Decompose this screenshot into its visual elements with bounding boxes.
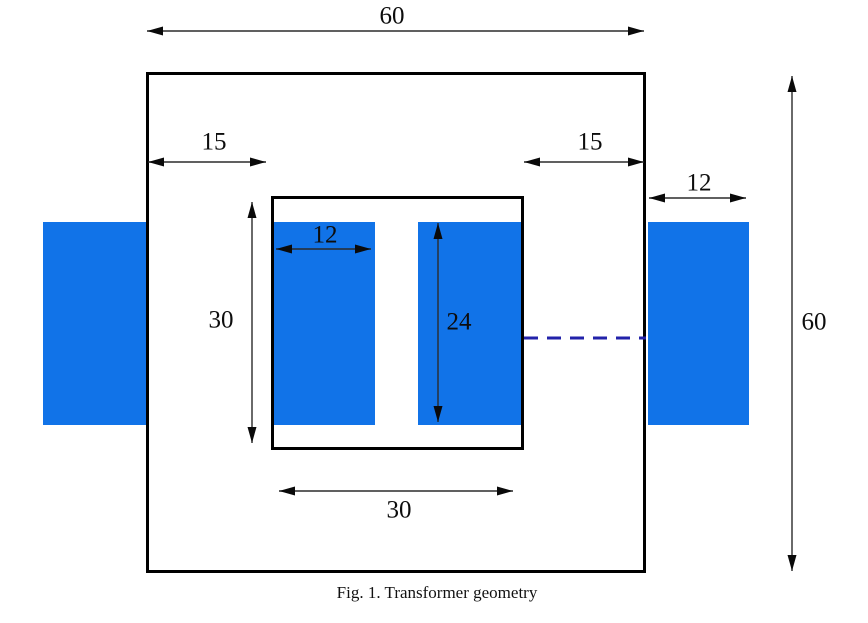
- dim-label-coil-height: 24: [447, 310, 472, 335]
- dim-label-core-width: 60: [380, 4, 405, 29]
- transformer-geometry-figure: 60 15 15 12 12 30 24 30 60 Fig. 1. Trans…: [0, 0, 868, 623]
- dim-label-window-height: 30: [209, 308, 234, 333]
- right-outer-coil: [648, 222, 749, 425]
- dim-label-right-limb: 15: [578, 130, 603, 155]
- dim-label-window-width: 30: [387, 498, 412, 523]
- dim-label-outer-coil-width: 12: [687, 171, 712, 196]
- dim-label-core-height: 60: [802, 310, 827, 335]
- figure-caption: Fig. 1. Transformer geometry: [337, 583, 538, 603]
- dim-label-left-limb: 15: [202, 130, 227, 155]
- core-window: [271, 196, 524, 450]
- left-outer-coil: [43, 222, 146, 425]
- dim-label-window-coil-width: 12: [313, 223, 338, 248]
